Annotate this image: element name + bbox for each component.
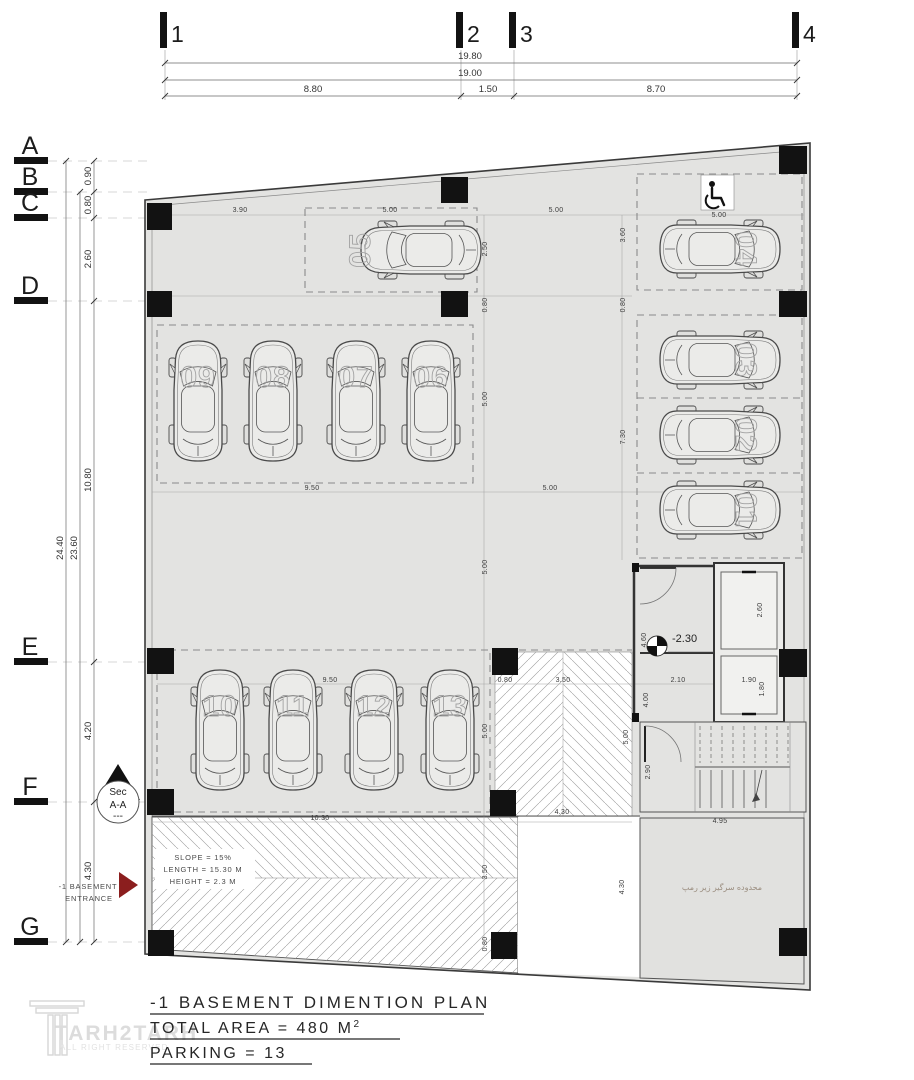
dim-label: 5.00 <box>482 560 489 575</box>
total-area-sup: 2 <box>353 1019 361 1030</box>
dim-label: 0.80 <box>482 937 489 952</box>
left-grid-ruler: A B C D E F G 24.40 23.60 0.90 0.80 2.60… <box>14 132 148 945</box>
dim-segment: 8.80 <box>304 84 323 95</box>
dim-label: 5.00 <box>482 392 489 407</box>
dim-label: 1.80 <box>759 682 766 697</box>
dim-label: 1.90 <box>742 677 757 684</box>
title-block: -1 BASEMENT DIMENTION PLAN TOTAL AREA = … <box>150 993 490 1064</box>
dim-label: 9.50 <box>305 485 320 492</box>
dim-label: 5.00 <box>543 485 558 492</box>
grid-column-label-3: 3 <box>520 21 533 47</box>
dim-label: 4.30 <box>555 809 570 816</box>
car-number: 06 <box>413 361 448 394</box>
dim-label: 4.00 <box>643 693 650 708</box>
car-07 <box>327 341 385 461</box>
car-09 <box>169 341 227 461</box>
grid-row-label-C: C <box>21 189 39 217</box>
floor-plan-canvas: TARH2TARH ALL RIGHT RESERVED 1 2 3 4 19.… <box>0 0 914 1080</box>
dim-label: 3.50 <box>556 677 571 684</box>
section-label: Sec <box>109 787 126 798</box>
car-08 <box>244 341 302 461</box>
grid-row-label-F: F <box>22 773 37 801</box>
ramp-area: SLOPE = 15% LENGTH = 15.30 M HEIGHT = 2.… <box>152 817 518 973</box>
section-label: A-A <box>110 800 127 811</box>
car-number: 01 <box>729 492 762 527</box>
car-number: 08 <box>255 361 290 394</box>
dim-label: 0.80 <box>620 298 627 313</box>
car-05 <box>361 221 481 279</box>
dim-label: 4.95 <box>713 818 728 825</box>
car-number: 10 <box>202 690 237 723</box>
dim-label: 2.90 <box>645 765 652 780</box>
grid-row-label-E: E <box>22 633 39 661</box>
dim-label: 3.60 <box>620 228 627 243</box>
elevator-cab-1 <box>721 572 777 649</box>
stairs <box>640 722 806 812</box>
grid-row-label-B: B <box>22 163 39 191</box>
entrance-label: -1 BASEMENT <box>59 882 118 891</box>
grid-row-label-G: G <box>20 913 39 941</box>
dim-label: 2.60 <box>757 603 764 618</box>
dim-label: 5.00 <box>482 724 489 739</box>
dim-label: 4.30 <box>619 880 626 895</box>
plan-title: -1 BASEMENT DIMENTION PLAN <box>150 993 490 1012</box>
parking-count-text: PARKING = 13 <box>150 1045 287 1062</box>
car-11 <box>264 670 322 790</box>
under-ramp-room: محدوده سرگیر زیر رمپ 4.95 <box>640 818 804 984</box>
dim-inner-width: 19.00 <box>458 68 482 79</box>
dim-segment: 4.30 <box>83 862 94 881</box>
level-value: -2.30 <box>672 633 697 645</box>
dim-segment: 10.80 <box>83 468 94 492</box>
dim-label: 5.00 <box>712 212 727 219</box>
elevator-cab-2 <box>721 656 777 714</box>
dim-segment: 0.80 <box>83 196 94 215</box>
dim-label: 9.50 <box>323 677 338 684</box>
dim-segment: 1.50 <box>479 84 498 95</box>
car-number: 02 <box>729 417 762 452</box>
dim-inner-height: 23.60 <box>69 536 80 560</box>
entrance-arrow-icon <box>119 872 138 898</box>
dim-label: 3.90 <box>233 207 248 214</box>
car-10 <box>191 670 249 790</box>
section-marker: Sec A-A --- <box>96 764 140 823</box>
dim-segment: 4.20 <box>83 722 94 741</box>
car-number: 11 <box>276 690 310 723</box>
dim-segment: 2.60 <box>83 250 94 269</box>
car-number: 13 <box>432 690 467 723</box>
grid-row-label-D: D <box>21 272 39 300</box>
dim-label: 5.00 <box>383 207 398 214</box>
dim-label: 3.50 <box>482 865 489 880</box>
dim-label: 2.50 <box>482 242 489 257</box>
drawing-sheet: TARH2TARH ALL RIGHT RESERVED 1 2 3 4 19.… <box>0 0 914 1080</box>
car-number: 07 <box>338 361 373 394</box>
car-13 <box>421 670 479 790</box>
entrance-label: ENTRANCE <box>65 894 113 903</box>
basement-entrance: -1 BASEMENT ENTRANCE <box>59 872 138 903</box>
car-number: 03 <box>729 342 762 377</box>
dim-overall-width: 19.80 <box>458 51 482 62</box>
total-area-text: TOTAL AREA = 480 M <box>150 1020 353 1037</box>
car-number: 09 <box>180 361 215 394</box>
ramp-slope-note: SLOPE = 15% <box>174 853 231 862</box>
car-06 <box>402 341 460 461</box>
car-number: 12 <box>356 690 391 723</box>
dim-label: 4.60 <box>641 633 648 648</box>
dim-overall-height: 24.40 <box>55 536 66 560</box>
top-grid-ruler: 1 2 3 4 19.80 19.00 8.80 1.50 8.70 <box>160 12 816 100</box>
svg-text:TOTAL AREA = 480 M2: TOTAL AREA = 480 M2 <box>150 1019 362 1037</box>
dim-label: 5.00 <box>623 730 630 745</box>
dim-label: 0.80 <box>498 677 513 684</box>
dim-label: 10.30 <box>310 815 329 822</box>
grid-column-label-1: 1 <box>171 21 184 47</box>
white-strip <box>518 817 640 977</box>
grid-row-label-A: A <box>22 132 39 160</box>
dim-label: 0.80 <box>482 298 489 313</box>
dim-label: 2.10 <box>671 677 686 684</box>
dim-segment: 0.90 <box>83 167 94 186</box>
accessibility-marker <box>701 175 734 210</box>
car-12 <box>345 670 403 790</box>
grid-column-label-4: 4 <box>803 21 816 47</box>
car-number: 04 <box>729 231 762 266</box>
ramp-length-note: LENGTH = 15.30 M <box>164 865 243 874</box>
grid-column-label-2: 2 <box>467 21 480 47</box>
ramp-height-note: HEIGHT = 2.3 M <box>170 877 237 886</box>
under-ramp-label: محدوده سرگیر زیر رمپ <box>682 882 762 892</box>
dim-label: 7.30 <box>620 430 627 445</box>
dim-label: 5.00 <box>549 207 564 214</box>
section-label: --- <box>113 811 123 822</box>
car-number: 05 <box>344 232 377 267</box>
dim-segment: 8.70 <box>647 84 666 95</box>
